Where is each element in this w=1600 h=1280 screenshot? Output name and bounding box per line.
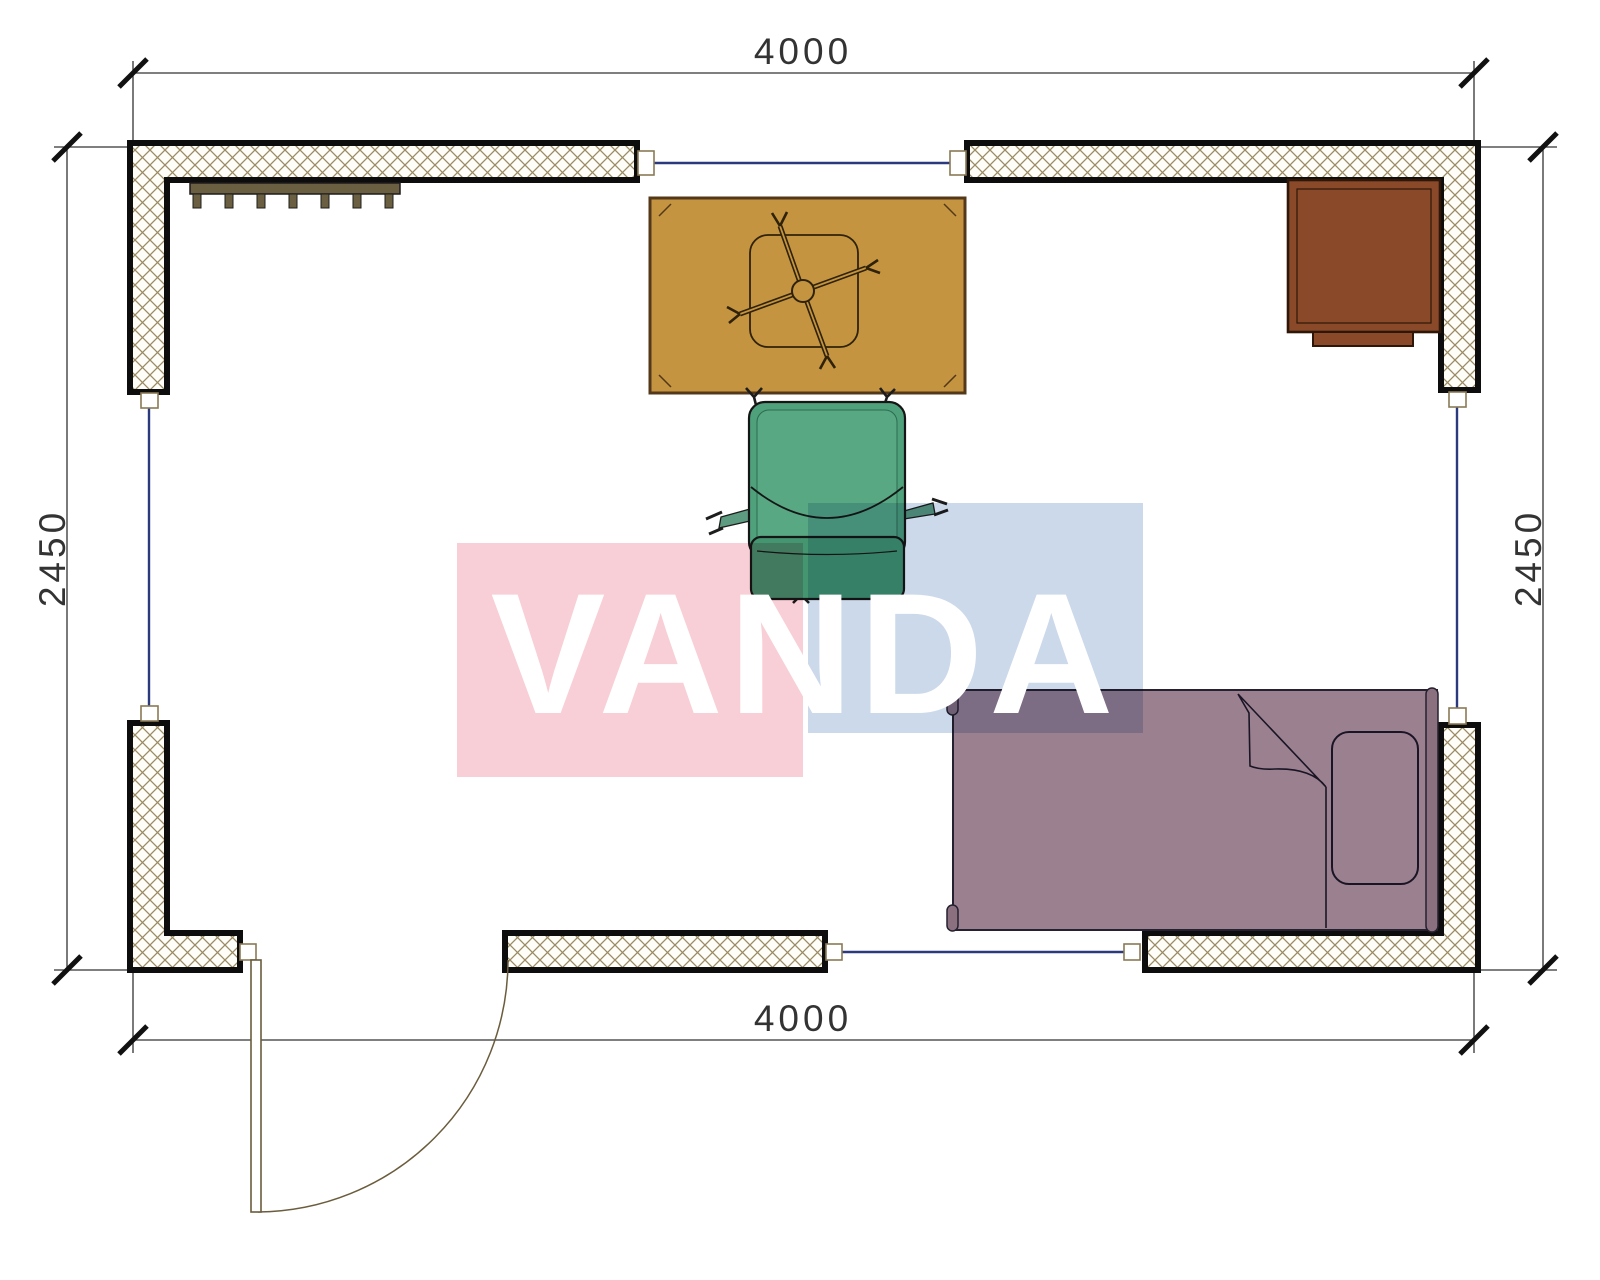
window-jamb bbox=[950, 151, 966, 175]
window-jamb bbox=[638, 151, 654, 175]
door bbox=[240, 944, 508, 1212]
dining-table bbox=[650, 198, 965, 393]
dim-label-bottom: 4000 bbox=[754, 998, 852, 1039]
window-jamb bbox=[1449, 708, 1466, 724]
chair-base-hub bbox=[792, 280, 814, 302]
dim-label-left: 2450 bbox=[32, 509, 73, 607]
window-jamb bbox=[141, 393, 158, 408]
watermark-text: VANDA bbox=[447, 568, 1163, 740]
window-jamb bbox=[1124, 944, 1140, 960]
pillow bbox=[1332, 732, 1418, 884]
radiator-tooth bbox=[321, 194, 329, 208]
dim-label-top: 4000 bbox=[754, 31, 852, 72]
radiator-tooth bbox=[193, 194, 201, 208]
radiator-body bbox=[190, 183, 400, 194]
dim-label-right: 2450 bbox=[1508, 509, 1549, 607]
radiator-tooth bbox=[225, 194, 233, 208]
wall-top-left bbox=[130, 143, 637, 392]
radiator-tooth bbox=[385, 194, 393, 208]
desk-drawer bbox=[1313, 332, 1413, 346]
window-jamb bbox=[141, 706, 158, 721]
desk-cabinet bbox=[1288, 180, 1440, 346]
wall-bottom-middle bbox=[505, 933, 825, 970]
radiator-tooth bbox=[257, 194, 265, 208]
bed-headboard bbox=[1426, 688, 1438, 932]
wall-bottom-left bbox=[130, 723, 240, 970]
window-jamb bbox=[1449, 392, 1466, 407]
desk-top bbox=[1288, 180, 1440, 332]
armrest-left bbox=[719, 509, 750, 528]
bedpost-bottom-left bbox=[947, 905, 958, 931]
radiator bbox=[190, 183, 400, 208]
door-jamb bbox=[240, 944, 256, 960]
window-jamb bbox=[826, 944, 842, 960]
floor-plan: 4000 4000 2450 2450 bbox=[0, 0, 1600, 1280]
door-leaf bbox=[251, 960, 261, 1212]
radiator-tooth bbox=[353, 194, 361, 208]
door-swing-arc bbox=[258, 960, 508, 1212]
radiator-tooth bbox=[289, 194, 297, 208]
